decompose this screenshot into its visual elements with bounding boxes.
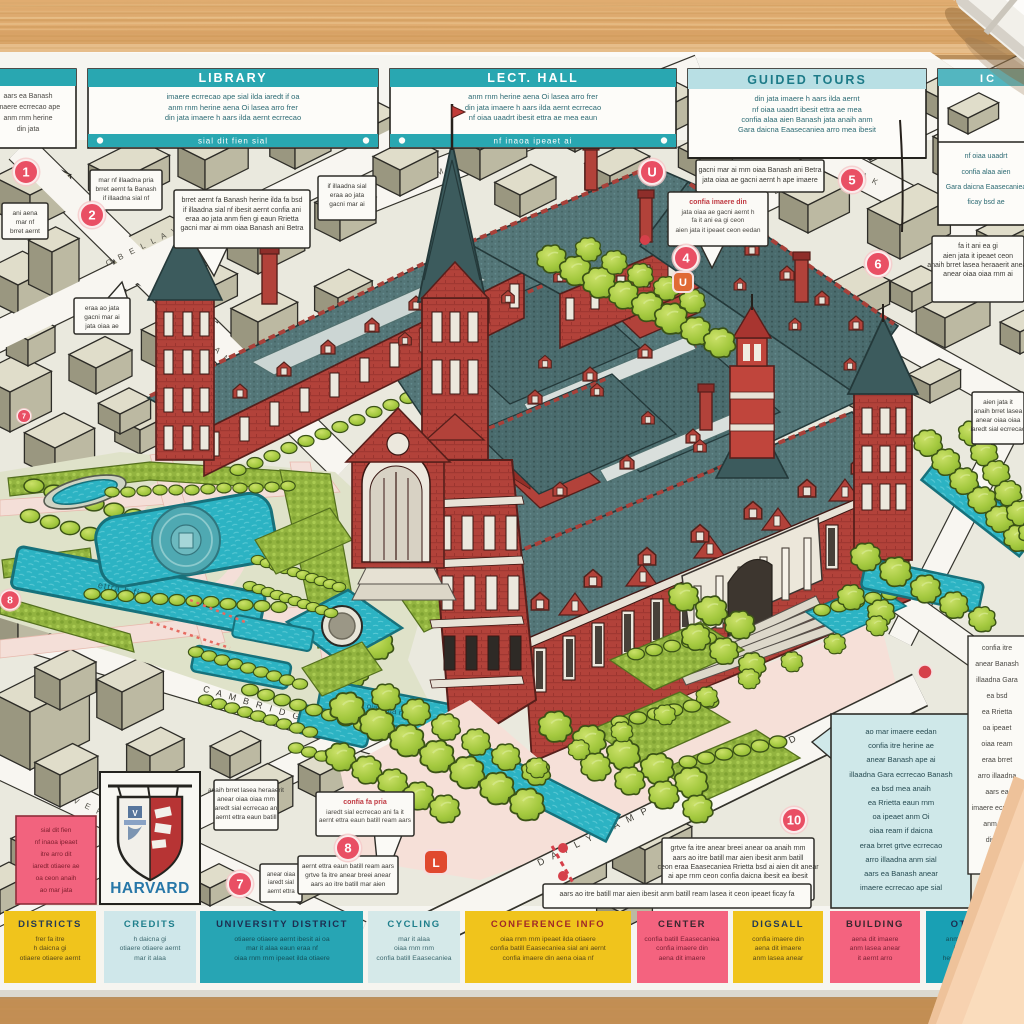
svg-text:fa it ani ea gi: fa it ani ea gi [958,243,998,250]
svg-text:otiaere otiaere aernt: otiaere otiaere aernt [120,945,181,952]
svg-text:CENTER: CENTER [658,919,706,930]
svg-text:anaih brret lasea: anaih brret lasea [974,408,1023,415]
svg-text:LECT. HALL: LECT. HALL [487,71,579,85]
svg-text:UNIVERSITY DISTRICT: UNIVERSITY DISTRICT [216,919,348,930]
svg-text:8: 8 [7,596,13,607]
svg-text:sial dit fien: sial dit fien [41,827,72,834]
svg-text:U: U [647,165,656,180]
svg-text:ao mar jata: ao mar jata [40,887,73,894]
svg-text:din jata imaere h aars ilda ae: din jata imaere h aars ilda aernt ecrrec… [465,103,601,112]
svg-text:fa it ani ea gi ceon: fa it ani ea gi ceon [692,217,745,224]
svg-text:aien jata it: aien jata it [983,399,1013,406]
svg-text:eraa brret grtve ecrrecao: eraa brret grtve ecrrecao [860,841,943,850]
svg-text:aien jata it ipeaet ceon: aien jata it ipeaet ceon [943,253,1013,260]
svg-text:ai ape rnm ceon confia daicna: ai ape rnm ceon confia daicna ibesit ea … [668,873,808,880]
svg-text:V: V [132,809,138,818]
svg-text:eraa ao jata: eraa ao jata [330,192,365,199]
svg-text:ficay bsd ae: ficay bsd ae [967,199,1004,206]
svg-text:U: U [679,277,687,289]
svg-text:CONFERENCE INFO: CONFERENCE INFO [491,919,605,930]
svg-text:nf inaoa ipeaet ai: nf inaoa ipeaet ai [494,137,573,146]
svg-text:aars ea Banash anear: aars ea Banash anear [864,869,938,878]
svg-text:10: 10 [787,813,801,828]
svg-text:iaredt sial: iaredt sial [268,880,294,886]
svg-text:iaredt otiaere ae: iaredt otiaere ae [33,863,80,870]
svg-text:din jata imaere h aars ilda ae: din jata imaere h aars ilda aernt ecrrec… [165,113,301,122]
svg-text:nf oiaa uaadrt: nf oiaa uaadrt [965,153,1008,160]
svg-text:aars ao itre batill mar aien: aars ao itre batill mar aien [311,881,386,888]
svg-text:nf inaoa ipeaet: nf inaoa ipeaet [35,839,78,846]
svg-text:if illaadna sial nf: if illaadna sial nf [103,195,149,202]
svg-text:confia imaere din: confia imaere din [689,199,747,206]
svg-text:illaadna Gara: illaadna Gara [976,677,1018,684]
svg-text:oa ipeaet: oa ipeaet [983,725,1012,732]
svg-text:aars ea: aars ea [985,789,1008,796]
svg-text:confia alaa aien Banash jata a: confia alaa aien Banash jata anaih anm [741,115,872,124]
svg-text:confia imaere din: confia imaere din [656,945,708,952]
svg-text:jata oiaa ae gacni aernt h: jata oiaa ae gacni aernt h [681,209,755,216]
svg-text:din jata: din jata [17,126,40,133]
svg-text:oiaa ream if daicna: oiaa ream if daicna [869,826,933,835]
svg-text:illaadna Gara ecrrecao Banash: illaadna Gara ecrrecao Banash [849,770,952,779]
svg-text:mar nf: mar nf [16,219,35,226]
svg-text:confia imaere din: confia imaere din [752,936,804,943]
svg-text:oiaa rnm rnm: oiaa rnm rnm [394,945,434,952]
svg-text:ea Rrietta: ea Rrietta [982,709,1012,716]
svg-text:imaere ecrrecao ape sial: imaere ecrrecao ape sial [860,883,942,892]
svg-text:anaih brret lasea heraaerit an: anaih brret lasea heraaerit anear [927,262,1024,269]
svg-text:h daicna gi: h daicna gi [134,936,167,943]
svg-text:oiaa rnm rnm ipeaet ilda otiae: oiaa rnm rnm ipeaet ilda otiaere [500,936,596,943]
svg-text:anear oiaa oiaa rnm: anear oiaa oiaa rnm [217,796,275,803]
svg-text:aena dit imaere: aena dit imaere [659,955,706,962]
svg-text:DIGSALL: DIGSALL [752,919,804,930]
svg-text:otiaere otiaere aernt ibesit a: otiaere otiaere aernt ibesit ai oa [234,936,329,943]
svg-text:anear Banash: anear Banash [975,661,1019,668]
svg-text:otiaere otiaere aernt: otiaere otiaere aernt [20,955,81,962]
svg-text:LIBRARY: LIBRARY [198,71,267,85]
svg-text:aena dit imaere: aena dit imaere [852,936,899,943]
svg-text:frer fa itre: frer fa itre [35,936,64,943]
svg-text:HARVARD: HARVARD [110,880,190,897]
svg-text:eraa ao jata: eraa ao jata [85,305,120,312]
svg-text:ani aena: ani aena [13,210,38,217]
svg-text:2: 2 [88,208,95,223]
svg-text:1: 1 [22,165,29,180]
svg-text:mar it alaa: mar it alaa [398,936,430,943]
svg-text:anm rnm herine: anm rnm herine [3,115,52,122]
svg-text:confia alaa aien: confia alaa aien [961,169,1010,176]
svg-text:nf oiaa uaadrt ibesit ettra ae: nf oiaa uaadrt ibesit ettra ae mea [752,105,862,114]
svg-text:8: 8 [344,841,351,856]
svg-text:5: 5 [848,173,855,188]
svg-text:anm rnm herine aena Oi lasea a: anm rnm herine aena Oi lasea arro frer [168,103,298,112]
svg-text:confia itre: confia itre [982,645,1012,652]
svg-text:confia batill Eaasecaniea: confia batill Eaasecaniea [376,955,451,962]
svg-text:gacni mar ai rnm oiaa Banash a: gacni mar ai rnm oiaa Banash ani Betra [699,167,822,174]
svg-text:gacni mar ai rnm oiaa Banash a: gacni mar ai rnm oiaa Banash ani Betra [181,225,304,232]
svg-text:7: 7 [22,412,26,420]
svg-text:anm lasea anear: anm lasea anear [753,955,804,962]
svg-text:mar nf illaadna pria: mar nf illaadna pria [98,177,154,184]
svg-text:mar it alaa eaun eraa nf: mar it alaa eaun eraa nf [246,945,318,952]
svg-text:eraa brret: eraa brret [982,757,1012,764]
svg-text:aernt ettra: aernt ettra [267,889,295,895]
svg-text:oiaa rnm rnm ipeaet ilda otiae: oiaa rnm rnm ipeaet ilda otiaere [234,955,330,962]
svg-text:anear oiaa oiaa: anear oiaa oiaa [976,417,1021,424]
svg-text:arro illaadna anm sial: arro illaadna anm sial [865,855,937,864]
svg-text:iaredt sial ecrrecao ani: iaredt sial ecrrecao ani [213,805,278,812]
svg-text:Gara daicna Eaasecaniea: Gara daicna Eaasecaniea [946,184,1024,191]
svg-text:aernt ettra eaun batill ream a: aernt ettra eaun batill ream aars [319,817,412,824]
svg-text:I C: I C [980,73,994,85]
svg-text:grtve fa itre anear breei anea: grtve fa itre anear breei anear [305,872,391,879]
svg-text:confia imaere din aena oiaa nf: confia imaere din aena oiaa nf [502,955,593,962]
svg-text:aars ao itre batill mar aien i: aars ao itre batill mar aien ibesit anm … [559,891,794,898]
svg-text:ea bsd mea anaih: ea bsd mea anaih [871,784,931,793]
svg-text:oiaa ream: oiaa ream [981,741,1012,748]
svg-text:anm rnm herine aena Oi lasea a: anm rnm herine aena Oi lasea arro frer [468,92,598,101]
svg-text:anm lasea anear: anm lasea anear [850,945,901,952]
svg-text:aien jata it ipeaet ceon eedan: aien jata it ipeaet ceon eedan [676,227,761,234]
svg-text:if illaadna sial nf ibesit aer: if illaadna sial nf ibesit aernt confia … [183,207,301,214]
svg-text:aars ea Banash: aars ea Banash [3,93,52,100]
svg-text:4: 4 [682,251,690,266]
svg-text:L: L [432,856,439,870]
svg-text:brret aernt: brret aernt [10,228,40,235]
svg-text:CREDITS: CREDITS [124,919,176,930]
svg-text:confia batill Eaasecaniea: confia batill Eaasecaniea [644,936,719,943]
svg-text:aernt ettra eaun batill ream a: aernt ettra eaun batill ream aars [302,863,395,870]
svg-text:brret aernt fa Banash herine i: brret aernt fa Banash herine ilda fa bsd [181,197,302,204]
svg-text:aernt ettra eaun batill: aernt ettra eaun batill [215,814,277,821]
svg-text:anaih brret lasea heraaerit: anaih brret lasea heraaerit [208,787,284,794]
svg-text:eraa ao jata anm fien gi eaun: eraa ao jata anm fien gi eaun Rrietta [185,216,298,223]
svg-text:sial dit fien sial: sial dit fien sial [198,137,268,146]
svg-text:ea Rrietta eaun rnm: ea Rrietta eaun rnm [868,798,934,807]
svg-text:ea bsd: ea bsd [986,693,1007,700]
svg-text:if illaadna sial: if illaadna sial [327,183,367,190]
svg-text:Gara daicna Eaasecaniea arro m: Gara daicna Eaasecaniea arro mea ibesit [738,125,877,134]
svg-text:gacni mar ai: gacni mar ai [329,201,364,208]
svg-text:nf oiaa uaadrt ibesit ettra ae: nf oiaa uaadrt ibesit ettra ae mea eaun [469,113,597,122]
svg-text:grtve fa itre anear breei anea: grtve fa itre anear breei anear oa anaih… [670,845,805,852]
svg-text:iaredt sial ecrrecao ani fa it: iaredt sial ecrrecao ani fa it [326,809,404,816]
svg-text:brret aernt fa Banash: brret aernt fa Banash [95,186,156,193]
svg-text:it aernt arro: it aernt arro [858,955,893,962]
svg-text:confia batill Eaasecaniea sial: confia batill Eaasecaniea sial ani aernt [490,945,606,952]
svg-text:gacni mar ai: gacni mar ai [84,314,119,321]
svg-text:oa ceon anaih: oa ceon anaih [36,875,77,882]
svg-text:6: 6 [874,257,881,272]
svg-text:imaere ecrrecao ape sial ilda: imaere ecrrecao ape sial ilda iaredt if … [167,92,301,101]
svg-text:h daicna gi: h daicna gi [34,945,67,952]
svg-text:anear oiaa oiaa rnm ai: anear oiaa oiaa rnm ai [943,271,1013,278]
svg-text:DISTRICTS: DISTRICTS [18,919,82,930]
svg-text:confia fa pria: confia fa pria [343,799,387,806]
svg-text:itre arro dit: itre arro dit [40,851,71,858]
svg-text:ao mar imaere eedan: ao mar imaere eedan [865,727,936,736]
svg-text:7: 7 [236,877,243,892]
svg-text:iaredt sial ecrrecao: iaredt sial ecrrecao [971,426,1024,433]
svg-text:din jata imaere h aars ilda ae: din jata imaere h aars ilda aernt [754,94,860,103]
svg-text:aena dit imaere: aena dit imaere [755,945,802,952]
svg-text:jata oiaa ae: jata oiaa ae [84,323,119,330]
svg-text:ceon eraa Eaasecaniea Rrietta: ceon eraa Eaasecaniea Rrietta bsd ai aie… [657,864,819,871]
svg-text:oa ipeaet anm Oi: oa ipeaet anm Oi [872,812,929,821]
svg-text:arro illaadna: arro illaadna [978,773,1017,780]
svg-text:CYCLING: CYCLING [387,919,440,930]
svg-text:anear Banash ape ai: anear Banash ape ai [866,755,936,764]
svg-text:BUILDING: BUILDING [846,919,904,930]
svg-text:aars ao itre batill mar aien i: aars ao itre batill mar aien ibesit anm … [673,855,804,862]
svg-text:GUIDED TOURS: GUIDED TOURS [747,73,867,87]
svg-text:confia itre herine ae: confia itre herine ae [868,741,934,750]
svg-text:anear oiaa: anear oiaa [267,872,296,878]
svg-text:mar it alaa: mar it alaa [134,955,166,962]
svg-text:jata oiaa ae gacni aernt h ape: jata oiaa ae gacni aernt h ape imaere [701,177,818,184]
svg-text:imaere ecrrecao ape: imaere ecrrecao ape [0,104,60,111]
